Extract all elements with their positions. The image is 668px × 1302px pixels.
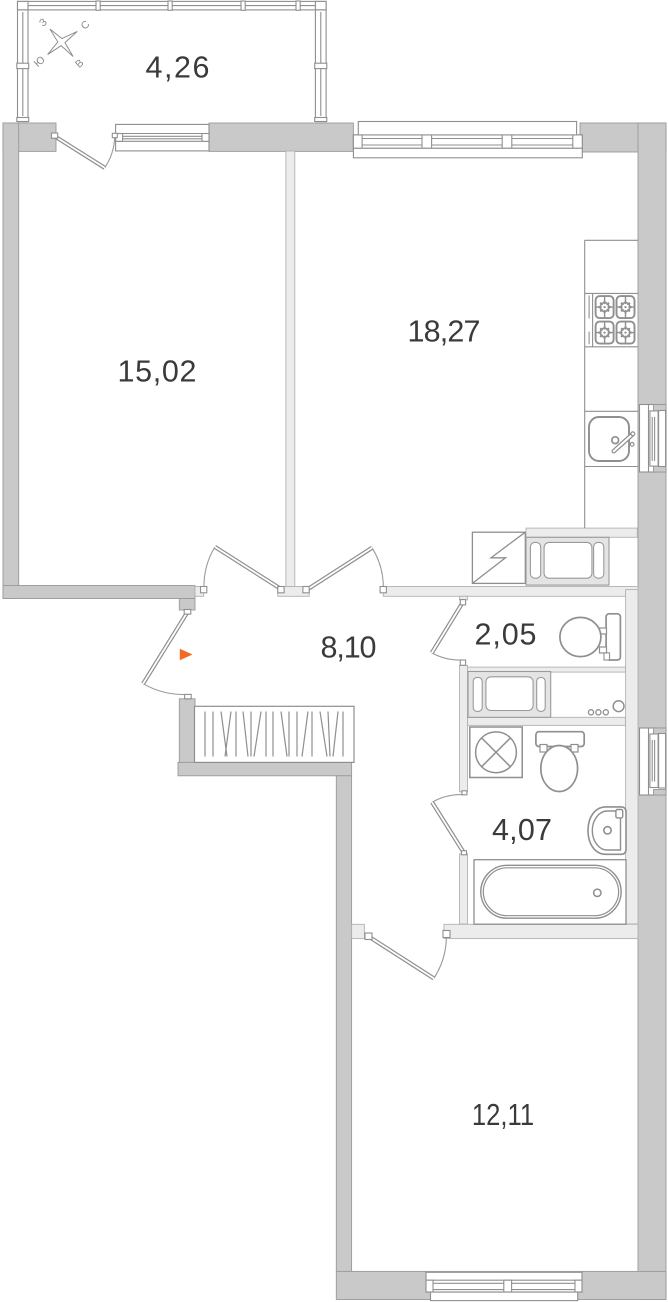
svg-text:12,11: 12,11: [472, 1098, 534, 1132]
svg-text:4,26: 4,26: [146, 51, 210, 85]
svg-text:18,27: 18,27: [408, 315, 481, 349]
svg-text:8,10: 8,10: [321, 631, 377, 665]
svg-text:2,05: 2,05: [475, 618, 537, 652]
svg-text:15,02: 15,02: [118, 355, 197, 389]
svg-text:4,07: 4,07: [492, 813, 552, 847]
